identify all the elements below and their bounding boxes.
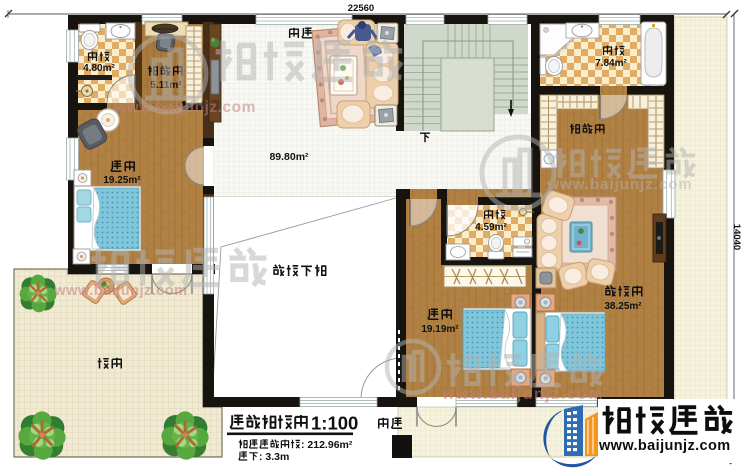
svg-text:1:100: 1:100 — [311, 413, 358, 434]
svg-text:22560: 22560 — [348, 3, 374, 14]
svg-text:www.baijunjz.com: www.baijunjz.com — [546, 176, 692, 193]
svg-text:19.19m²: 19.19m² — [421, 324, 459, 335]
svg-text:www.baijunjz.com: www.baijunjz.com — [113, 99, 256, 116]
svg-text:4.59m²: 4.59m² — [475, 222, 507, 233]
svg-text:4.80m²: 4.80m² — [83, 63, 115, 74]
svg-text:www.baijunjz.com: www.baijunjz.com — [53, 283, 187, 299]
svg-text:www.baijunjz.com: www.baijunjz.com — [598, 438, 731, 454]
svg-text:: 212.96m²: : 212.96m² — [301, 439, 353, 451]
svg-text:: 3.3m: : 3.3m — [259, 451, 289, 463]
svg-text:14040: 14040 — [731, 224, 742, 250]
svg-text:www.baijunjz.com: www.baijunjz.com — [441, 386, 604, 403]
svg-text:19.25m²: 19.25m² — [103, 175, 141, 186]
svg-text:38.25m²: 38.25m² — [604, 301, 642, 312]
svg-text:89.80m²: 89.80m² — [269, 151, 309, 163]
svg-text:7.84m²: 7.84m² — [595, 58, 627, 69]
